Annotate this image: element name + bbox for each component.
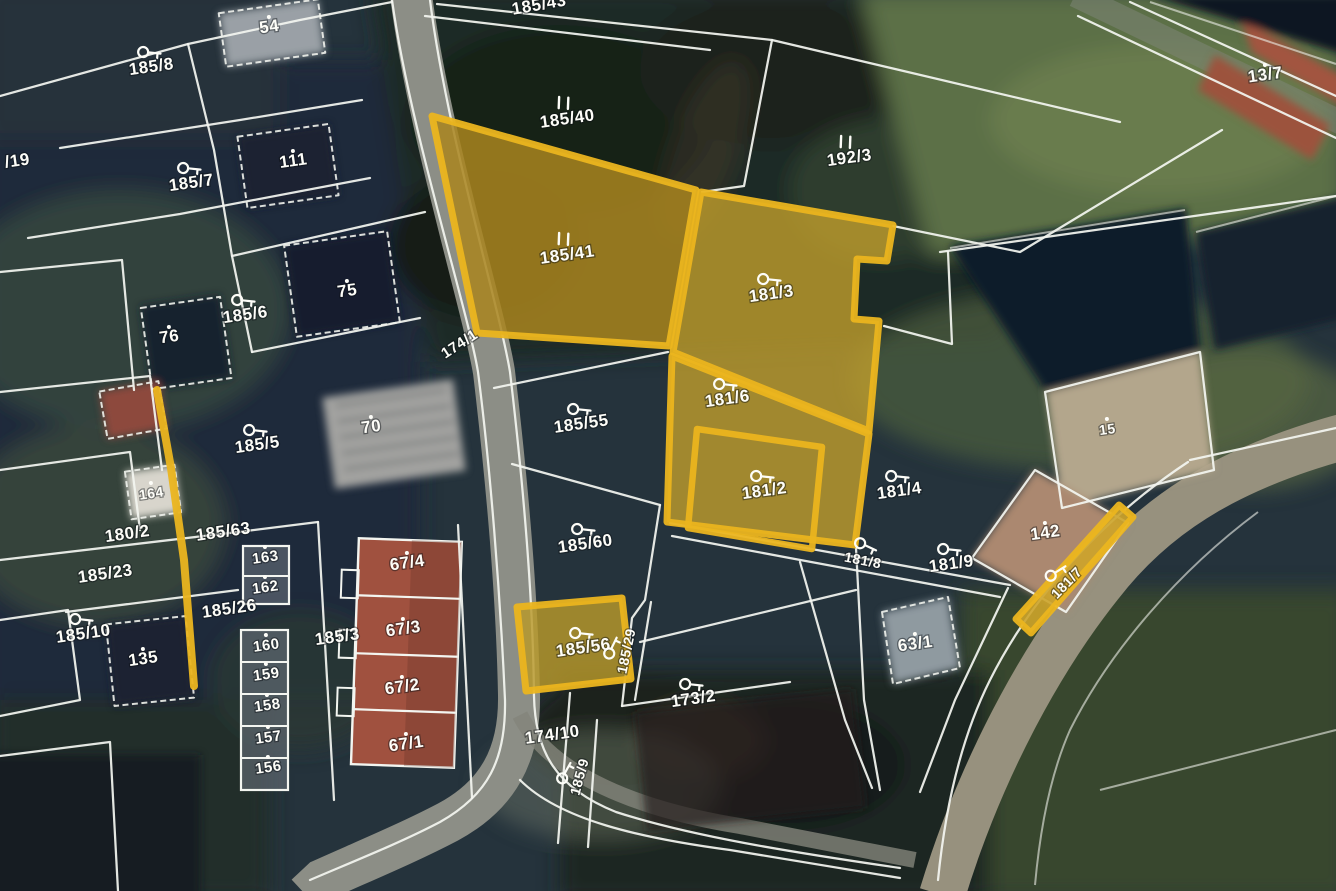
building-76 (141, 295, 232, 389)
parcel-number-text: 75 (336, 280, 358, 302)
parcel-label--19: /19 (3, 149, 31, 171)
parcel-label-70: 70 (360, 414, 383, 438)
map-viewport[interactable]: 54185/8/19185/711176185/675185/570164180… (0, 0, 1336, 891)
parcel-number-text: 111 (278, 149, 308, 172)
parcel-number-text: 76 (158, 326, 180, 348)
parcel-number-text: 15 (1098, 420, 1117, 438)
parcel-number-text: 164 (138, 483, 165, 502)
parcel-label-75: 75 (336, 278, 359, 302)
building-ruin-south (634, 689, 865, 831)
parcel-number-text: /19 (3, 149, 31, 171)
parcel-number-text: 54 (258, 16, 280, 38)
parcel-label-76: 76 (158, 324, 181, 348)
building-cluster-southwest (0, 755, 200, 891)
parcel-number-text: 70 (360, 416, 382, 438)
cadastral-map[interactable]: 54185/8/19185/711176185/675185/570164180… (0, 0, 1336, 891)
parcel-label-54: 54 (258, 14, 281, 38)
